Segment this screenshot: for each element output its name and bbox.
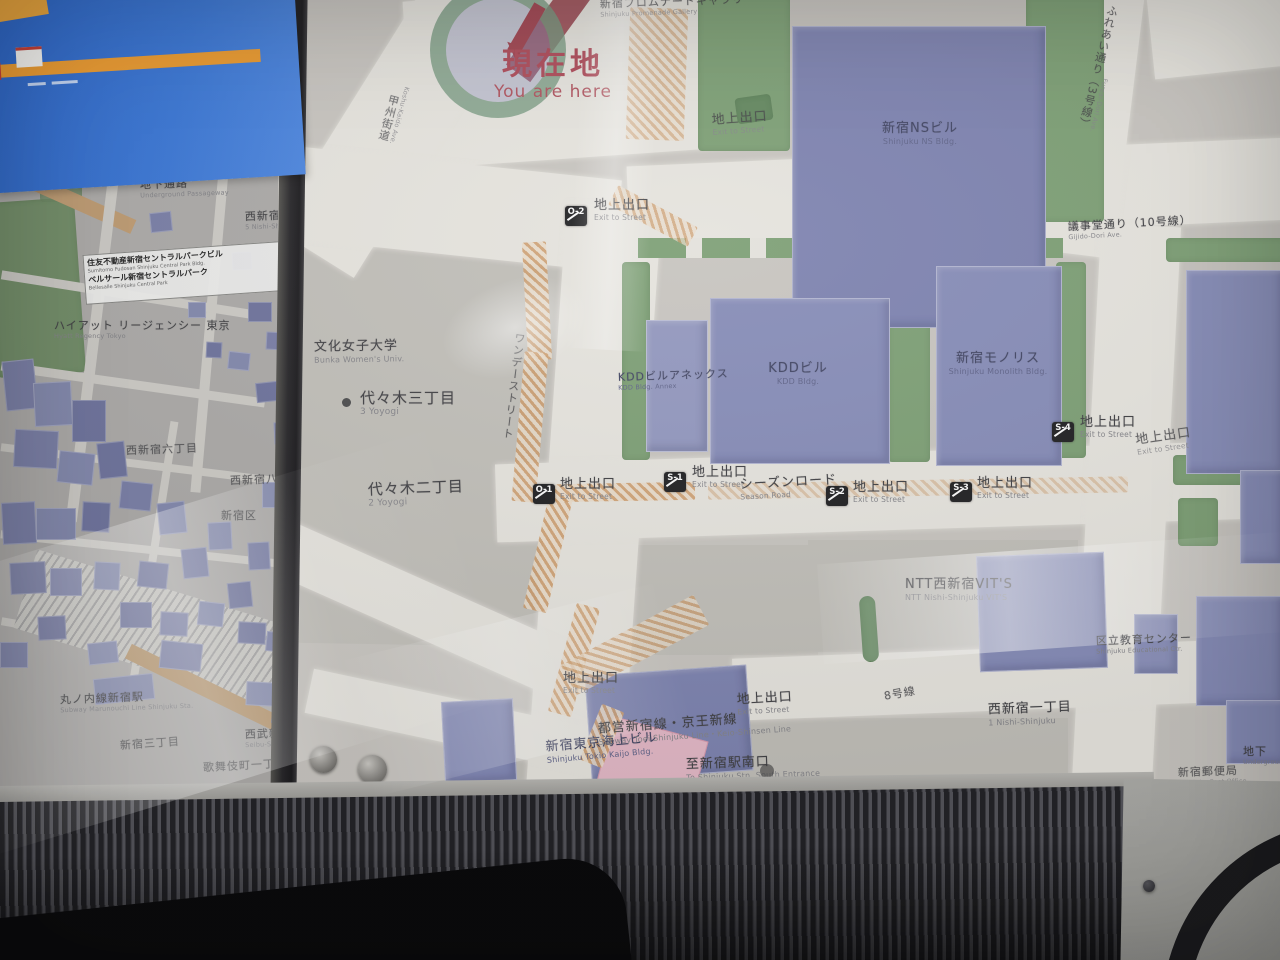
building: [1186, 270, 1280, 474]
exit-label: 地上出口Exit to Street: [560, 478, 616, 502]
map-building: [188, 302, 206, 318]
label-building-ntt: NTT西新宿VIT'SNTT Nishi-Shinjuku VIT'S: [905, 578, 1013, 602]
sign-text-mark: [52, 80, 78, 85]
road: [1071, 223, 1181, 796]
label-shinjuku-ward: 新宿区: [221, 510, 257, 523]
label-building-edu: 区立教育センターShinjuku Educational Ctr.: [1096, 632, 1193, 655]
label-district-yoyogi2: 代々木二丁目2 Yoyogi: [368, 478, 465, 509]
building-ntt-vits: [976, 552, 1108, 672]
building-edu-center: [1196, 596, 1280, 706]
map-building: [13, 429, 59, 469]
exit-label: 地上出口Exit to Street: [563, 672, 619, 696]
label-building-monolith: 新宿モノリスShinjuku Monolith Bldg.: [908, 352, 1088, 376]
exit-badge-icon: S-3: [950, 482, 972, 502]
map-building: [247, 541, 270, 570]
label-district-nishi6: 西新宿六丁目: [126, 443, 198, 458]
blue-sign-panel: [0, 0, 306, 193]
map-building: [37, 615, 66, 640]
map-building: [237, 621, 266, 644]
label-hyatt: ハイアット リージェンシー 東京Hyatt Regency Tokyo: [54, 320, 231, 340]
map-building: [197, 601, 225, 628]
map-building: [0, 642, 28, 668]
screw-icon: [358, 755, 387, 784]
map-building: [33, 381, 73, 427]
map-building: [120, 602, 152, 628]
exit-badge-icon: S-1: [664, 472, 686, 492]
main-map-panel: 現在地 You are here 新宿プロムナードギャラリーShinjuku P…: [278, 0, 1280, 796]
map-building: [72, 400, 106, 442]
label-district-shinjuku3: 新宿三丁目: [120, 736, 181, 753]
map-building: [207, 521, 232, 550]
station-map-photo: 地下通路Underground Passageway 西新宿五丁目5 Nishi…: [0, 0, 1280, 960]
map-building: [181, 547, 210, 580]
map-building: [119, 480, 154, 511]
map-building: [50, 568, 82, 596]
map-building: [36, 508, 76, 540]
exit-label: 地上出口Exit to Street: [711, 110, 769, 137]
exit-label: 地上出口Exit to Street: [853, 481, 909, 505]
exit-label: 地上出口Exit to Street: [977, 477, 1033, 501]
exit-badge-icon: S-2: [826, 486, 848, 506]
left-map-panel: 地下通路Underground Passageway 西新宿五丁目5 Nishi…: [0, 130, 282, 792]
road: [1146, 0, 1280, 79]
label-district-nishi1: 西新宿一丁目1 Nishi-Shinjuku: [988, 701, 1073, 728]
label-marunouchi-station: 丸ノ内線新宿駅Subway Marunouchi Line Shinjuku S…: [60, 690, 194, 715]
label-district-yoyogi3: 代々木三丁目3 Yoyogi: [360, 390, 456, 418]
green-area: [1178, 498, 1218, 546]
sign-text-mark: [28, 82, 46, 86]
map-building: [159, 640, 204, 672]
exit-label: 地上出口Exit to Street: [594, 199, 650, 223]
map-building: [227, 581, 254, 609]
sign-corner-strip: [0, 0, 49, 26]
exit-label: 地上出口Exit to Street: [1080, 416, 1136, 440]
map-building: [93, 561, 120, 590]
map-building: [156, 501, 187, 536]
label-underground-br: 地下Underground: [1243, 746, 1280, 766]
map-building: [159, 611, 188, 636]
label-place-bunka: 文化女子大学Bunka Women's Univ.: [314, 339, 405, 365]
map-building: [56, 450, 95, 486]
exit-badge-icon: O-1: [533, 484, 555, 504]
dot-marker: [342, 398, 351, 407]
map-building: [227, 351, 251, 371]
map-building: [149, 211, 173, 233]
label-building-ns: 新宿NSビルShinjuku NS Bldg.: [830, 122, 1010, 146]
map-building: [206, 342, 223, 359]
map-building: [1, 501, 37, 545]
map-building: [137, 561, 170, 590]
you-are-here-label: 現在地 You are here: [463, 48, 643, 102]
map-building: [87, 640, 119, 665]
exit-badge-icon: O-2: [565, 206, 587, 226]
green-area: [1166, 238, 1280, 262]
map-building: [96, 441, 128, 480]
building: [1240, 470, 1280, 564]
sign-white-chip: [15, 46, 42, 68]
map-building: [9, 561, 47, 595]
label-central-park-box: 住友不動産新宿セントラルパークビル Sumitomo Fudosan Shinj…: [82, 241, 282, 305]
screw-icon: [1143, 880, 1155, 892]
map-building: [81, 501, 111, 532]
label-building-kdd: KDDビルKDD Bldg.: [733, 362, 863, 386]
exit-badge-icon: S-4: [1052, 422, 1074, 442]
label-building-annex: KDDビルアネックスKDD Bldg. Annex: [618, 368, 729, 392]
map-building: [248, 302, 272, 322]
label-district-nishi5: 西新宿五丁目5 Nishi-Shinjuku: [245, 209, 282, 232]
building: [441, 698, 517, 784]
screw-icon: [310, 746, 337, 773]
